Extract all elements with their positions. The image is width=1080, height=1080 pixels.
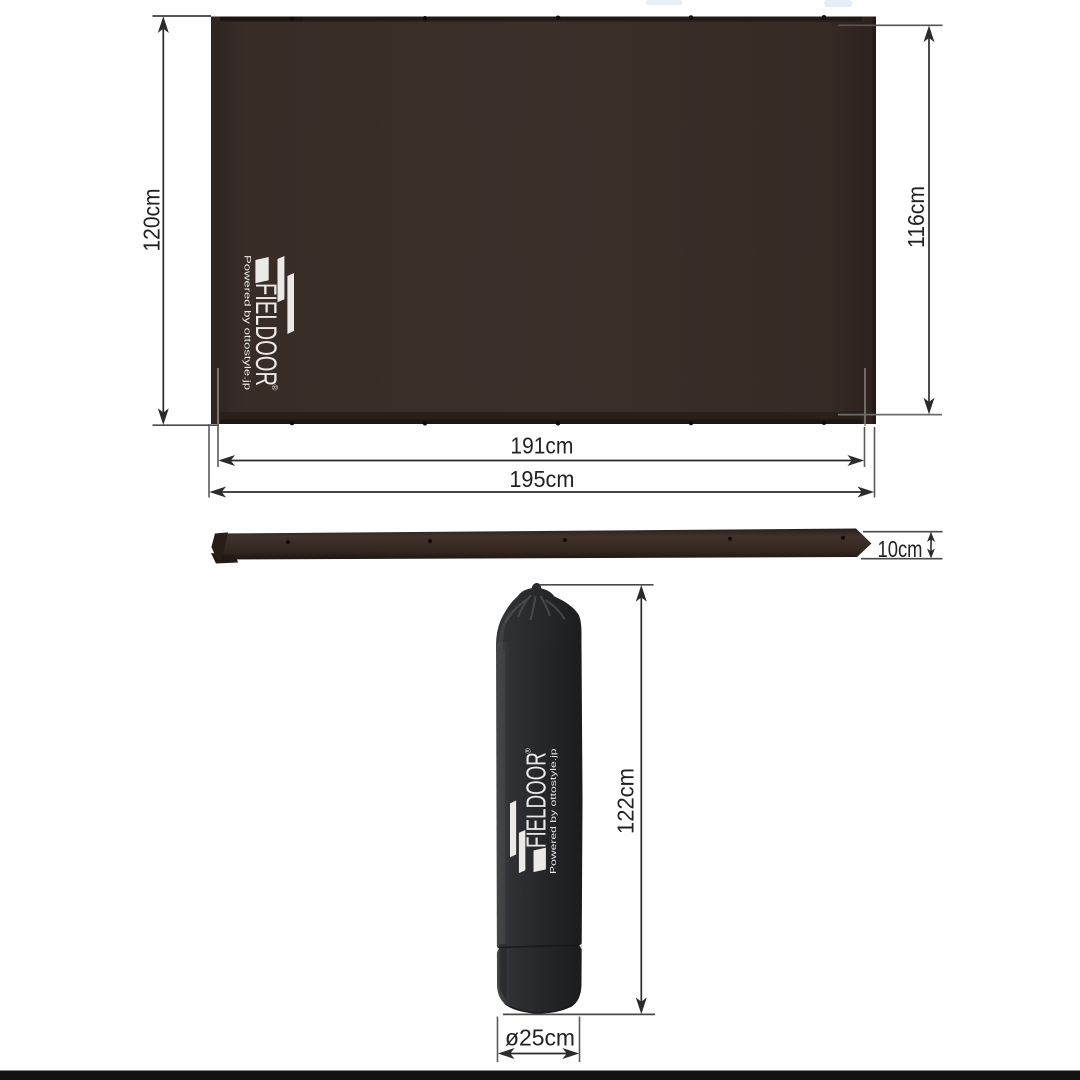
svg-text:ø25cm: ø25cm bbox=[505, 1025, 575, 1051]
svg-text:122cm: 122cm bbox=[613, 768, 639, 834]
svg-text:191cm: 191cm bbox=[510, 433, 573, 459]
svg-text:116cm: 116cm bbox=[903, 186, 929, 248]
svg-text:195cm: 195cm bbox=[509, 466, 574, 492]
svg-text:10cm: 10cm bbox=[878, 536, 923, 562]
svg-text:120cm: 120cm bbox=[139, 189, 165, 252]
